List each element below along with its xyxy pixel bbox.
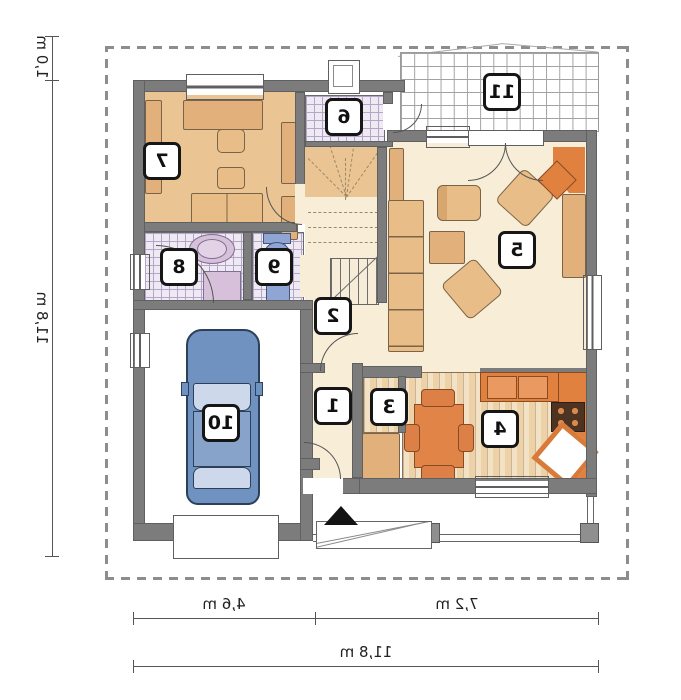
dimension-tick — [133, 612, 134, 625]
dimension-tick — [598, 660, 599, 673]
dimension-tick — [598, 612, 599, 625]
dimension-label-setback: 1,0 m — [33, 27, 51, 87]
dining-chair — [421, 389, 455, 407]
room-badge-5: 5 — [498, 231, 536, 269]
room-label: 6 — [337, 106, 350, 128]
wall-room1-room3 — [352, 363, 363, 478]
window — [130, 254, 150, 290]
room-label: 8 — [172, 256, 185, 278]
side-table — [217, 167, 245, 189]
wall-thin-counter-back — [480, 368, 586, 372]
car-rear-window — [193, 467, 251, 489]
entrance-arrow — [324, 506, 358, 525]
dining-table — [414, 404, 464, 468]
wall-stairs-right — [377, 147, 387, 303]
stair-landing — [305, 147, 377, 197]
room-badge-1: 1 — [314, 387, 352, 425]
room-label: 4 — [493, 418, 506, 440]
dining-chair — [404, 424, 420, 452]
door-opening-wc — [300, 255, 313, 297]
wall-room6-right-stub — [383, 92, 393, 104]
porch-post — [580, 523, 599, 543]
property-line-bottom — [105, 577, 629, 580]
shelf-unit — [562, 194, 586, 278]
room-label: 9 — [267, 256, 280, 278]
window — [426, 126, 470, 148]
car-mirror — [255, 382, 263, 396]
window — [186, 74, 264, 100]
dimension-tick — [45, 556, 59, 557]
property-line-left — [105, 46, 108, 580]
floor-plan-canvas: 1 2 3 4 5 6 7 8 9 10 11 1,0 m 11,8 m 4,6… — [0, 0, 681, 700]
window — [130, 333, 150, 368]
sofa — [388, 200, 424, 352]
dimension-tick — [315, 612, 316, 625]
desk-chair — [217, 129, 245, 153]
wall-garage-right — [300, 300, 313, 541]
dimension-label-bottom-right: 7,2 m — [417, 595, 497, 613]
vestibule-cabinet — [362, 433, 400, 480]
room-label: 3 — [382, 396, 395, 418]
room-badge-11: 11 — [483, 73, 521, 111]
washbasin-inner — [197, 239, 227, 259]
room-badge-3: 3 — [370, 388, 408, 426]
wall-room7-bath — [144, 222, 297, 232]
step-diagonal — [316, 521, 432, 549]
dimension-line-bottom-inner — [133, 618, 599, 619]
room-label: 5 — [510, 239, 523, 261]
sink-basin — [518, 376, 548, 399]
entrance-door-opening — [303, 478, 343, 494]
cabinet — [389, 148, 404, 204]
coffee-table — [429, 231, 465, 264]
wall-exterior-top — [133, 80, 405, 92]
dimension-line-left — [52, 36, 53, 557]
room-label: 2 — [326, 305, 339, 327]
stair-tread-dashed — [308, 212, 378, 213]
room-badge-9: 9 — [255, 248, 293, 286]
dimension-label-bottom-left: 4,6 m — [184, 595, 264, 613]
room-label: 1 — [326, 395, 339, 417]
room-badge-10: 10 — [202, 404, 240, 442]
porch-column-line — [587, 497, 594, 525]
property-line-right — [626, 46, 629, 580]
dimension-label-bottom-total: 11,8 m — [326, 643, 406, 661]
room-badge-8: 8 — [160, 248, 198, 286]
stair-tread-dashed — [308, 242, 378, 243]
dimension-line-bottom-outer — [133, 666, 599, 667]
window — [475, 476, 549, 498]
entrance-steps — [316, 521, 432, 549]
door-opening-room6 — [383, 104, 393, 130]
room-badge-7: 7 — [143, 142, 181, 180]
room-badge-4: 4 — [481, 410, 519, 448]
room-badge-6: 6 — [325, 98, 363, 136]
dimension-label-left-total: 11,8 m — [33, 288, 51, 348]
room-label: 7 — [155, 150, 168, 172]
room-label: 10 — [208, 412, 234, 434]
stair-direction-arrow — [345, 158, 346, 200]
dining-chair — [458, 424, 474, 452]
window — [583, 275, 602, 350]
garage-door — [173, 515, 279, 559]
desk — [183, 100, 263, 130]
chimney-inner — [333, 65, 353, 87]
room-label: 11 — [489, 81, 515, 103]
stair-tread-dashed — [308, 227, 378, 228]
wall-bath-wc — [243, 232, 252, 300]
armchair — [437, 185, 481, 221]
dimension-tick — [133, 660, 134, 673]
sink-basin — [487, 376, 517, 399]
room-badge-2: 2 — [314, 297, 352, 335]
car-mirror — [181, 382, 189, 396]
